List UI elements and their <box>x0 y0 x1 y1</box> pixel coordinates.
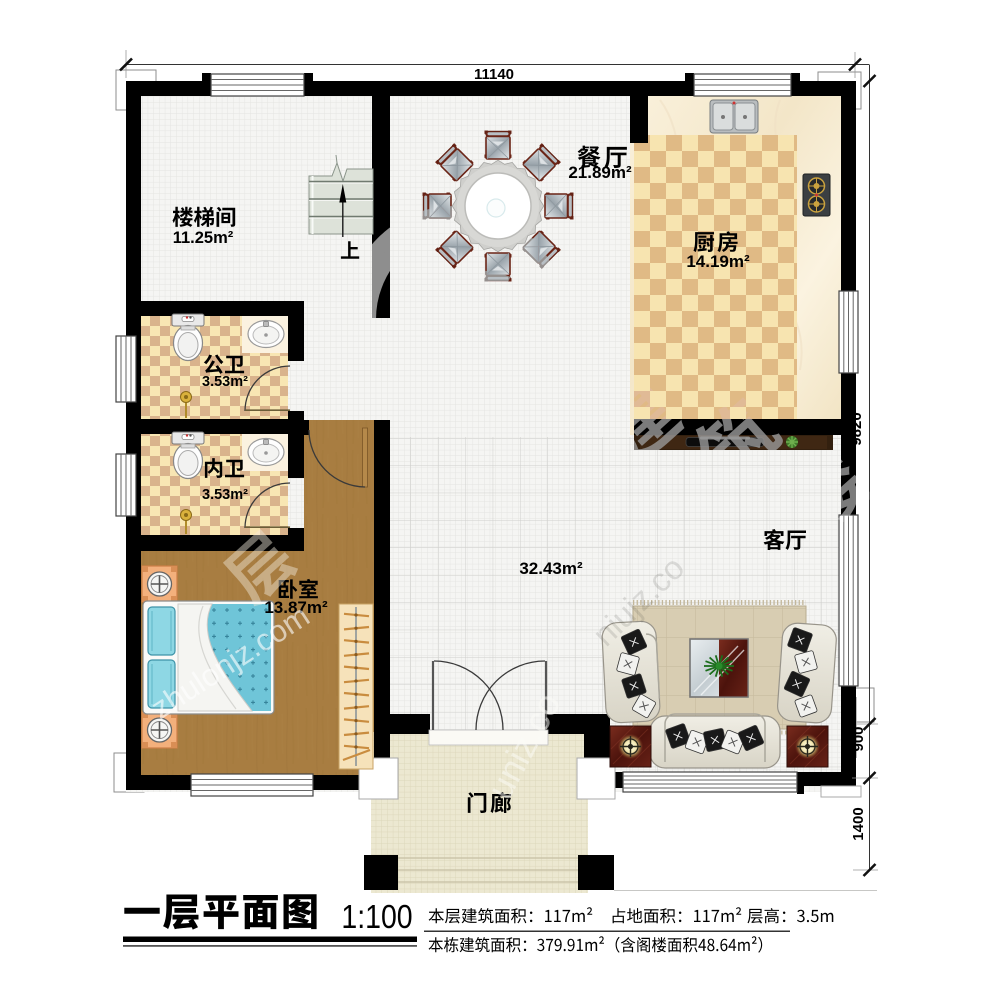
svg-text:900: 900 <box>850 726 867 751</box>
svg-text:14.19m²: 14.19m² <box>686 252 750 271</box>
svg-text:9820: 9820 <box>848 412 865 445</box>
svg-text:11140: 11140 <box>474 66 514 83</box>
svg-text:3.53m²: 3.53m² <box>202 374 248 390</box>
svg-text:11.25m²: 11.25m² <box>173 229 234 247</box>
svg-text:1:100: 1:100 <box>341 898 412 936</box>
svg-text:32.43m²: 32.43m² <box>519 559 583 578</box>
svg-text:1400: 1400 <box>850 807 867 840</box>
svg-text:3.53m²: 3.53m² <box>202 487 248 503</box>
svg-text:21.89m²: 21.89m² <box>568 163 632 182</box>
